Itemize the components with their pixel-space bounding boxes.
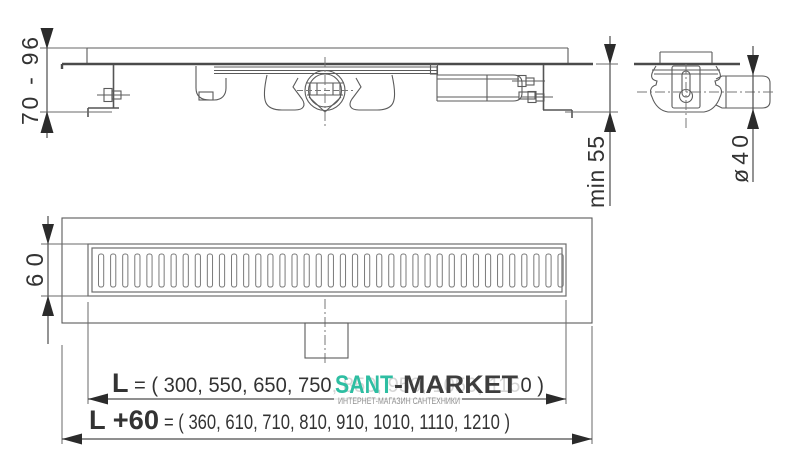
- grate-width-label: 60: [22, 253, 49, 287]
- grate-slot: [365, 254, 370, 287]
- dimension-grate-width: 60: [22, 216, 88, 344]
- watermark-brand-secondary: -MARKET: [394, 371, 518, 399]
- grate-slot: [340, 254, 345, 287]
- grate-slot: [159, 254, 164, 287]
- grate-slot: [232, 254, 237, 287]
- channel-cross-section: [660, 52, 712, 63]
- grate-slot: [268, 254, 273, 287]
- grate-slot: [123, 254, 128, 287]
- top-view: [62, 218, 592, 364]
- grate-slot: [111, 254, 116, 287]
- side-view: [62, 48, 593, 128]
- siphon-side: [297, 57, 353, 128]
- grate-slot: [304, 254, 309, 287]
- grate-slot: [522, 254, 527, 287]
- grate-slot: [498, 254, 503, 287]
- grate-slot: [328, 254, 333, 287]
- grate-slot: [449, 254, 454, 287]
- drawing-canvas: 70 - 96 min 55 ø40 60 L = ( 300, 550, 65…: [0, 0, 797, 470]
- left-bracket: [88, 65, 130, 117]
- grate-slot: [546, 254, 551, 287]
- watermark: SANT -MARKET ИНТЕРНЕТ-МАГАЗИН САНТЕХНИКИ: [331, 370, 521, 406]
- mounting-flange: [62, 218, 592, 323]
- grate-frame-outer: [88, 244, 566, 296]
- outlet-footprint: [305, 323, 348, 358]
- grate-frame-inner: [92, 248, 562, 292]
- grate-slot: [425, 254, 430, 287]
- height-range-label: 70 - 96: [17, 37, 43, 125]
- outlet-diameter-label: ø40: [727, 135, 753, 183]
- grate-slot: [473, 254, 478, 287]
- watermark-subtitle: ИНТЕРНЕТ-МАГАЗИН САНТЕХНИКИ: [338, 396, 460, 406]
- grate-slots: [99, 254, 564, 287]
- grate-slot: [183, 254, 188, 287]
- grate-slot: [413, 254, 418, 287]
- grate-slot: [485, 254, 490, 287]
- grate-slot: [510, 254, 515, 287]
- dimension-height-range: 70 - 96: [17, 28, 112, 138]
- grate-slot: [207, 254, 212, 287]
- grate-slot: [377, 254, 382, 287]
- grate-slot: [461, 254, 466, 287]
- length-plus-label: L +60: [89, 405, 159, 435]
- grate-slot: [389, 254, 394, 287]
- length-plus-values: = ( 360, 610, 710, 810, 910, 1010, 1110,…: [164, 411, 510, 434]
- grate-slot: [195, 254, 200, 287]
- grate-slot: [219, 254, 224, 287]
- grate-slot: [135, 254, 140, 287]
- grate-slot: [352, 254, 357, 287]
- dimension-min-depth: min 55: [565, 36, 618, 208]
- grate-slot: [534, 254, 539, 287]
- tile-strip: [87, 48, 568, 63]
- outlet-pipe: [716, 76, 770, 108]
- watermark-brand-primary: SANT: [335, 371, 393, 399]
- grate-slot: [99, 254, 104, 287]
- min-depth-label: min 55: [583, 136, 609, 208]
- grate-slot: [437, 254, 442, 287]
- grate-slot: [316, 254, 321, 287]
- grate-slot: [147, 254, 152, 287]
- grate-slot: [244, 254, 249, 287]
- grate-slot: [256, 254, 261, 287]
- grate-slot: [280, 254, 285, 287]
- technical-drawing: 70 - 96 min 55 ø40 60 L = ( 300, 550, 65…: [0, 0, 797, 470]
- grate-slot: [171, 254, 176, 287]
- grate-slot: [401, 254, 406, 287]
- side-outlet: [431, 64, 536, 101]
- dimension-outlet-diameter: ø40: [727, 46, 759, 183]
- length-label: L: [112, 368, 129, 398]
- grate-slot: [292, 254, 297, 287]
